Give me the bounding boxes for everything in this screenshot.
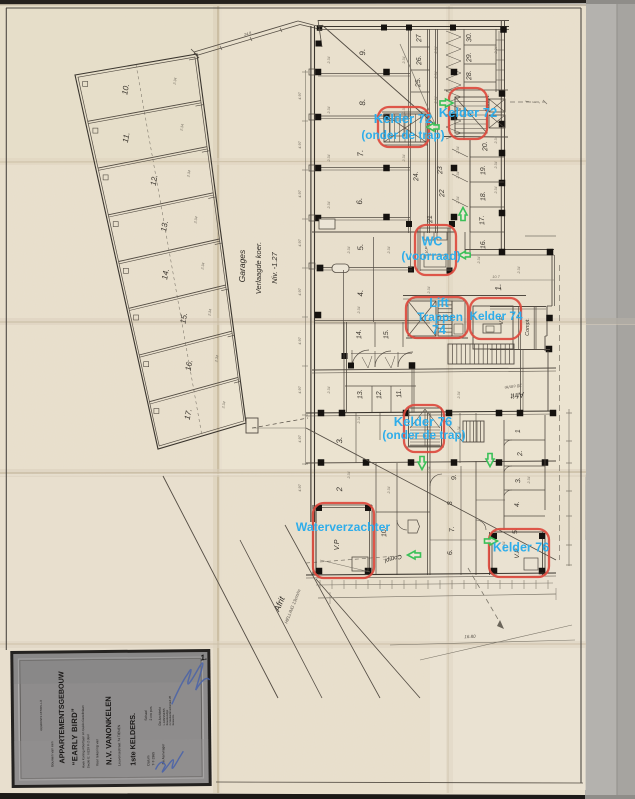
svg-text:18.: 18. (480, 191, 488, 201)
svg-text:2.34: 2.34 (402, 57, 406, 65)
svg-text:Kelder 76: Kelder 76 (394, 414, 453, 429)
svg-text:APPARTEMENTSGEBOUW: APPARTEMENTSGEBOUW (56, 671, 66, 763)
svg-text:7.: 7. (356, 150, 366, 157)
svg-text:Kelder 72: Kelder 72 (439, 105, 498, 120)
svg-text:4.97: 4.97 (298, 287, 302, 295)
svg-text:3.: 3. (335, 437, 345, 444)
svg-text:1.: 1. (493, 283, 504, 291)
svg-text:(onder de trap): (onder de trap) (361, 128, 444, 142)
svg-text:2.34: 2.34 (347, 247, 351, 255)
svg-text:3.: 3. (515, 477, 522, 483)
svg-text:“EARLY BIRD”: “EARLY BIRD” (70, 708, 80, 766)
svg-text:Datum: Datum (146, 755, 150, 765)
svg-text:2.34: 2.34 (357, 417, 361, 425)
svg-text:2.34: 2.34 (456, 197, 460, 205)
svg-text:1.: 1. (200, 653, 208, 663)
svg-text:10.7: 10.7 (492, 275, 500, 279)
svg-text:1: 1 (515, 429, 522, 434)
svg-text:2.34: 2.34 (477, 257, 481, 265)
svg-text:2.34: 2.34 (357, 307, 361, 315)
svg-text:De Aanvrager: De Aanvrager (161, 743, 165, 765)
svg-text:Kelder 76: Kelder 76 (493, 541, 549, 555)
svg-text:2.34: 2.34 (427, 467, 431, 475)
svg-text:4.: 4. (356, 290, 366, 297)
svg-text:11.: 11. (396, 388, 404, 398)
svg-text:2.34: 2.34 (387, 247, 391, 255)
svg-text:13.: 13. (357, 389, 365, 399)
svg-text:23: 23 (437, 166, 445, 175)
svg-text:Schaal: Schaal (144, 710, 148, 721)
svg-text:7.: 7. (449, 526, 456, 532)
svg-text:Kessel-lo: Kessel-lo (171, 714, 175, 725)
svg-text:2.34: 2.34 (457, 392, 461, 400)
svg-text:V.P: V.P (334, 539, 341, 550)
svg-text:21: 21 (427, 215, 435, 224)
svg-text:Kelder 72: Kelder 72 (374, 111, 433, 126)
svg-text:4.97: 4.97 (298, 434, 302, 442)
svg-text:2.34: 2.34 (387, 487, 391, 495)
svg-text:26.: 26. (416, 55, 424, 66)
svg-text:2.: 2. (517, 450, 525, 457)
svg-text:9.: 9. (358, 49, 368, 56)
svg-text:2.34: 2.34 (494, 137, 498, 145)
svg-text:2 cm p.m.: 2 cm p.m. (149, 706, 153, 721)
svg-text:Waterverzachter: Waterverzachter (296, 520, 391, 534)
svg-text:2.34: 2.34 (434, 47, 438, 55)
svg-text:6.: 6. (447, 549, 454, 555)
svg-text:2.34: 2.34 (327, 202, 331, 210)
svg-text:WC: WC (422, 235, 443, 249)
svg-text:4.97: 4.97 (298, 91, 302, 99)
svg-text:2.34: 2.34 (427, 287, 431, 295)
svg-text:(voorraad): (voorraad) (401, 249, 460, 263)
svg-text:2.34: 2.34 (327, 155, 331, 163)
svg-text:2.34: 2.34 (327, 107, 331, 115)
svg-text:15.: 15. (383, 329, 391, 339)
svg-text:4.97: 4.97 (298, 189, 302, 197)
svg-text:2.34: 2.34 (517, 267, 521, 275)
svg-text:GEMEENTE KESSEL-LO: GEMEENTE KESSEL-LO (39, 700, 43, 731)
svg-text:Verlaagde koer.: Verlaagde koer. (254, 242, 263, 294)
svg-text:14.: 14. (356, 329, 364, 339)
svg-text:4.97: 4.97 (298, 385, 302, 393)
svg-text:4.97: 4.97 (298, 483, 302, 491)
svg-text:4.: 4. (514, 501, 521, 507)
svg-text:9.: 9. (451, 474, 458, 480)
svg-text:5.: 5. (356, 244, 366, 251)
svg-text:19.: 19. (480, 165, 488, 175)
svg-text:Compt.: Compt. (525, 318, 531, 336)
svg-text:2.34: 2.34 (434, 72, 438, 80)
svg-text:4.97: 4.97 (298, 336, 302, 344)
svg-text:2.34: 2.34 (434, 97, 438, 105)
svg-text:24.: 24. (413, 171, 421, 182)
svg-text:Garages: Garages (237, 249, 247, 282)
svg-text:7-7-1965: 7-7-1965 (151, 752, 155, 766)
svg-text:20.: 20. (482, 141, 490, 152)
svg-text:4.97: 4.97 (298, 140, 302, 148)
svg-text:22: 22 (439, 189, 447, 198)
svg-text:2.34: 2.34 (456, 172, 460, 180)
svg-text:74: 74 (432, 323, 446, 337)
svg-text:28.: 28. (466, 70, 474, 81)
svg-text:8.: 8. (358, 99, 368, 106)
svg-text:2.34: 2.34 (347, 472, 351, 480)
svg-text:2.34: 2.34 (402, 155, 406, 163)
svg-text:2.34: 2.34 (327, 387, 331, 395)
svg-text:6.: 6. (355, 198, 365, 205)
svg-text:16.80: 16.80 (464, 634, 476, 639)
svg-text:4.97: 4.97 (298, 238, 302, 246)
svg-text:16.: 16. (480, 239, 488, 249)
svg-text:2.34: 2.34 (494, 47, 498, 55)
svg-text:(onder de trap): (onder de trap) (382, 428, 465, 442)
svg-text:17.: 17. (479, 215, 487, 225)
svg-text:12.: 12. (376, 389, 384, 399)
svg-text:16.: 16. (184, 359, 195, 372)
svg-text:12.: 12. (149, 174, 160, 187)
svg-text:Leuvensestraat 74 TIENEN: Leuvensestraat 74 TIENEN (117, 724, 121, 766)
svg-text:Voor rekening van: Voor rekening van (95, 739, 99, 766)
svg-text:1ste KELDERS.: 1ste KELDERS. (128, 713, 138, 766)
svg-text:2.34: 2.34 (456, 147, 460, 155)
svg-text:Sectie E: nr229 m 2 deel: Sectie E: nr229 m 2 deel (86, 734, 90, 768)
svg-text:N.V. VANONKELEN: N.V. VANONKELEN (104, 696, 114, 765)
svg-text:Bouwen van een: Bouwen van een (50, 741, 54, 766)
svg-text:Hoek Koning Albertlaan en Guid: Hoek Koning Albertlaan en Guido Gezellel… (81, 705, 86, 768)
svg-text:2.34: 2.34 (327, 57, 331, 65)
svg-text:Kelder 74: Kelder 74 (469, 309, 523, 323)
svg-text:Niv. -1.27: Niv. -1.27 (270, 251, 279, 283)
svg-text:2.34: 2.34 (494, 162, 498, 170)
svg-text:2.34: 2.34 (527, 477, 531, 485)
svg-text:29.: 29. (466, 52, 474, 63)
svg-text:Trappen: Trappen (417, 310, 463, 324)
svg-text:Lift: Lift (429, 296, 449, 310)
svg-text:30.: 30. (466, 32, 474, 42)
svg-text:2.34: 2.34 (494, 187, 498, 195)
